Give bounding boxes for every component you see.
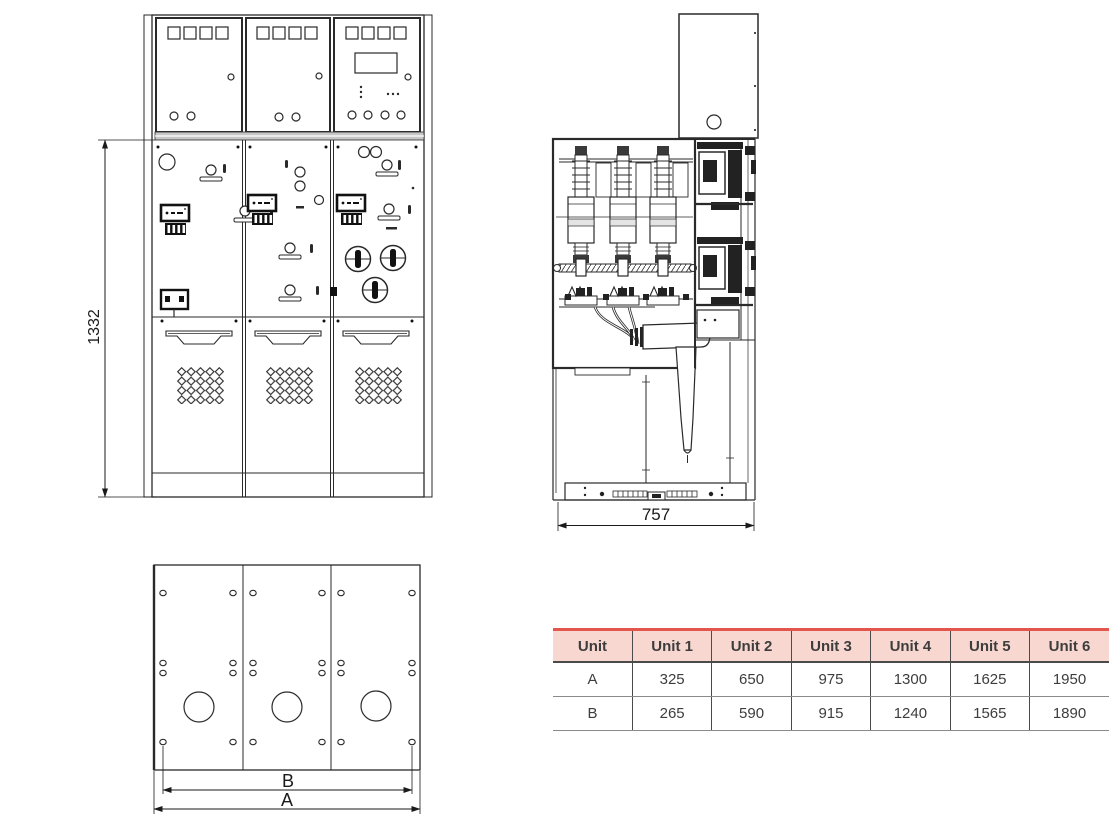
side-instrument-box	[679, 14, 758, 138]
smart-indicator	[248, 195, 276, 225]
lower-doors	[166, 331, 409, 404]
table-cell: 1625	[950, 662, 1029, 697]
operation-knob	[381, 246, 406, 271]
table-cell: 975	[791, 662, 870, 697]
operating-mechanism	[695, 139, 756, 368]
operation-knob	[363, 278, 388, 303]
table-header-cell: Unit 5	[950, 630, 1029, 663]
table-cell: 1300	[871, 662, 950, 697]
depth-dimension-label: 757	[642, 505, 670, 524]
table-cell: 1890	[1030, 697, 1109, 731]
table-cell: 650	[712, 662, 791, 697]
table-cell: 265	[632, 697, 711, 731]
plan-view-drawing: B A	[145, 560, 430, 825]
side-view-drawing: 757	[545, 10, 780, 535]
height-dimension-label: 1332	[86, 309, 103, 345]
table-cell: 915	[791, 697, 870, 731]
smart-indicator	[337, 195, 365, 225]
dimension-table-container: Unit Unit 1 Unit 2 Unit 3 Unit 4 Unit 5 …	[553, 628, 1109, 731]
row-label-cell: A	[553, 662, 632, 697]
base-plate	[553, 483, 755, 500]
cable-termination	[630, 323, 710, 463]
table-cell: 590	[712, 697, 791, 731]
table-header-cell: Unit	[553, 630, 632, 663]
width-b-label: B	[282, 771, 294, 791]
table-cell: 1240	[871, 697, 950, 731]
table-row: B 265 590 915 1240 1565 1890	[553, 697, 1109, 731]
table-cell: 1950	[1030, 662, 1109, 697]
front-view-drawing: 1332	[85, 10, 435, 505]
row-label-cell: B	[553, 697, 632, 731]
table-header-cell: Unit 3	[791, 630, 870, 663]
width-a-label: A	[281, 790, 293, 810]
table-header-cell: Unit 6	[1030, 630, 1109, 663]
engineering-drawing-page: 1332	[0, 0, 1120, 825]
depth-dimension: 757	[558, 502, 754, 531]
table-header-cell: Unit 4	[871, 630, 950, 663]
dimension-table: Unit Unit 1 Unit 2 Unit 3 Unit 4 Unit 5 …	[553, 628, 1109, 731]
display-screen	[355, 53, 397, 73]
table-header-row: Unit Unit 1 Unit 2 Unit 3 Unit 4 Unit 5 …	[553, 630, 1109, 663]
table-row: A 325 650 975 1300 1625 1950	[553, 662, 1109, 697]
table-header-cell: Unit 1	[632, 630, 711, 663]
table-cell: 325	[632, 662, 711, 697]
base-frame-outline	[154, 565, 420, 770]
operation-knob	[346, 247, 371, 272]
table-header-cell: Unit 2	[712, 630, 791, 663]
table-cell: 1565	[950, 697, 1029, 731]
smart-indicator	[161, 205, 189, 235]
